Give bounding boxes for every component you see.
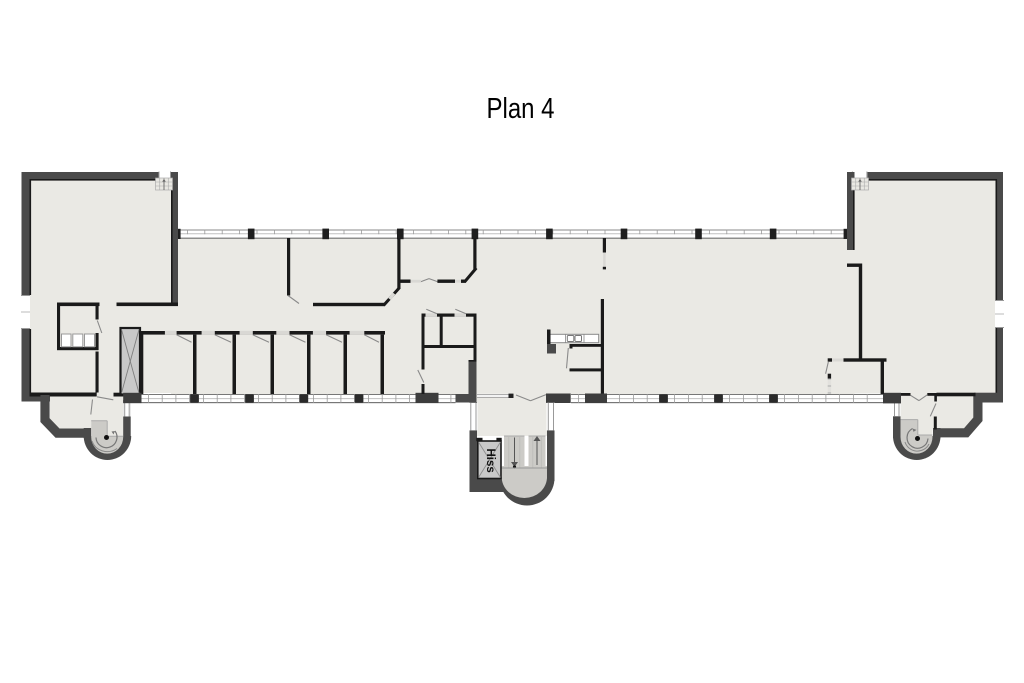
svg-text:Plan 4: Plan 4 xyxy=(487,93,555,125)
svg-text:Hiss: Hiss xyxy=(484,449,496,473)
